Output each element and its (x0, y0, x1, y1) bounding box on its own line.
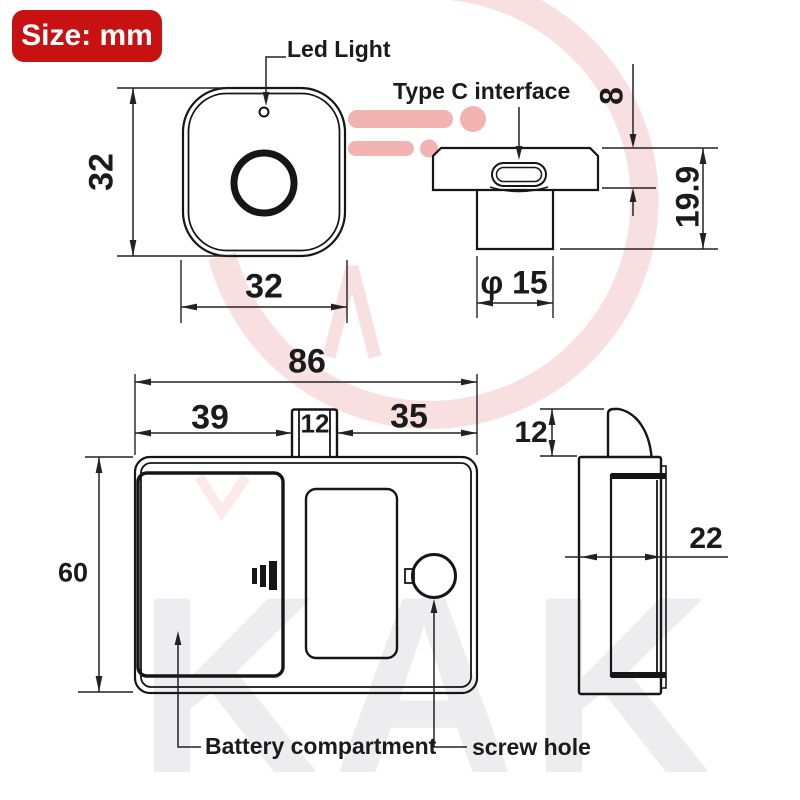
battery-compartment-label: Battery compartment (205, 733, 436, 760)
size-unit-badge: Size: mm (12, 10, 162, 62)
type-c-port-inner (497, 168, 542, 182)
dim-latch-height: 12 (514, 416, 547, 450)
led-leader-arrowhead (263, 92, 270, 106)
dim-total-width: 86 (288, 343, 326, 382)
dim-tab-width: 12 (301, 409, 330, 440)
fingerprint-sensor-ring (234, 153, 294, 213)
type-c-arrowhead (516, 146, 523, 160)
type-c-port-outer (492, 163, 546, 186)
dim-total-height: 19.9 (670, 166, 707, 228)
front-view (183, 88, 345, 256)
watermark-chevron (199, 477, 246, 512)
watermark-key-bar (348, 110, 453, 128)
front-outline-outer (183, 88, 345, 256)
dim-front-height: 32 (83, 153, 122, 191)
sensor-side-view (433, 148, 598, 249)
watermark-wedge (329, 267, 375, 357)
dim-right-segment: 35 (390, 398, 428, 437)
dim-body-height: 60 (58, 558, 88, 589)
type-c-label: Type C interface (393, 78, 570, 105)
watermark-key-bar-2 (348, 141, 414, 156)
dim32-left-ext (117, 88, 233, 256)
dim-depth: 22 (689, 522, 722, 556)
dim-front-width: 32 (245, 268, 283, 307)
dim12-side-ext (540, 409, 604, 456)
cap-outline (433, 148, 598, 190)
screw-hole-label: screw hole (472, 734, 591, 761)
watermark-key-dot (460, 106, 486, 132)
latch-cam-outline (608, 409, 652, 457)
dim-cap-height: 8 (594, 87, 631, 105)
led-light-dot (260, 108, 269, 117)
dim-left-segment: 39 (191, 399, 229, 438)
stem-outline (477, 190, 553, 249)
led-light-label: Led Light (287, 36, 390, 63)
technical-drawing-page: KAK (0, 0, 800, 800)
dim-stem-diameter: φ 15 (480, 265, 547, 302)
